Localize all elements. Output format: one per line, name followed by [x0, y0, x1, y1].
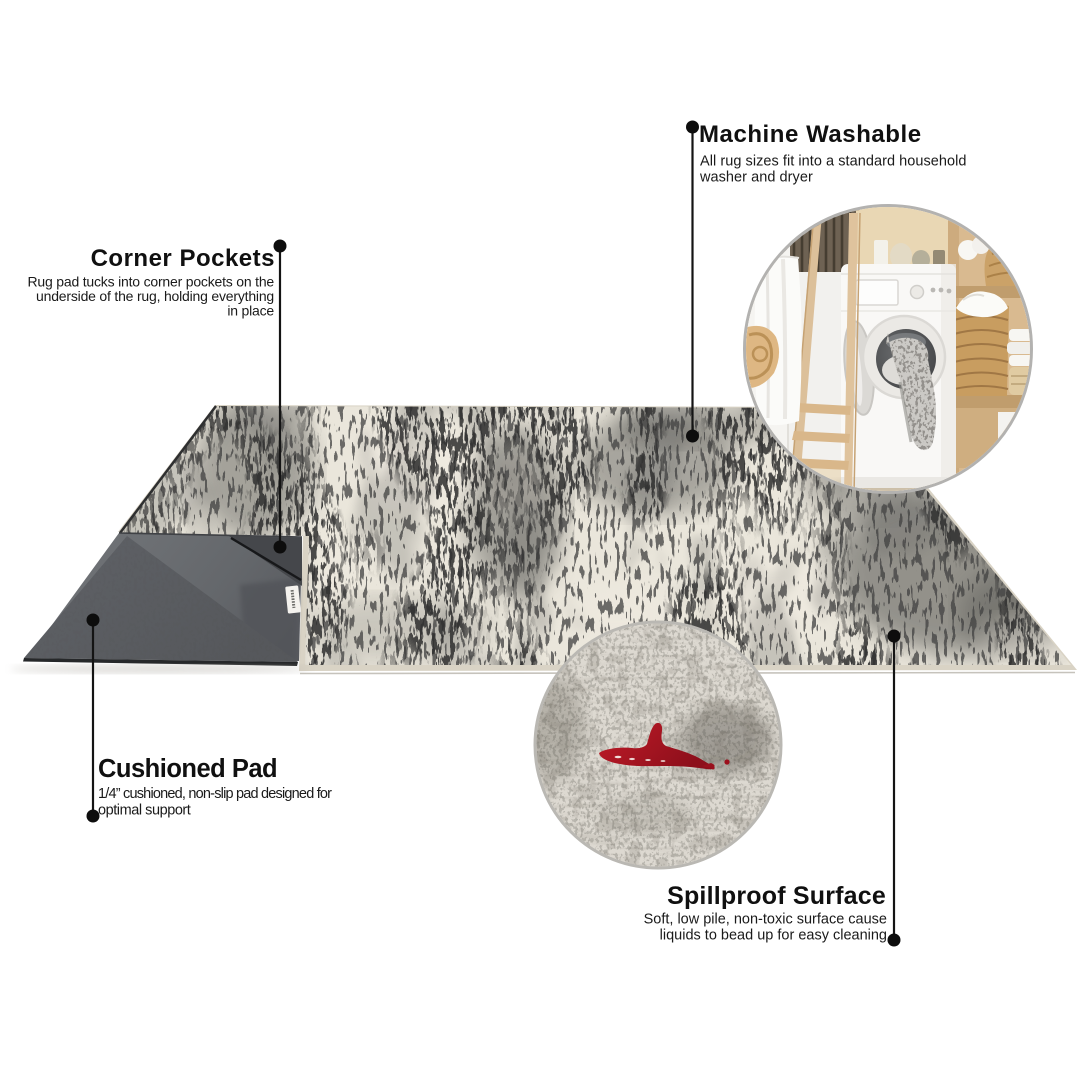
svg-text:Machine Washable: Machine Washable	[699, 121, 922, 148]
svg-text:optimal support: optimal support	[98, 803, 191, 819]
svg-text:liquids to bead up for easy cl: liquids to bead up for easy cleaning	[660, 928, 887, 944]
svg-text:washer and dryer: washer and dryer	[699, 170, 813, 186]
svg-text:Corner Pockets: Corner Pockets	[91, 245, 275, 272]
svg-text:1/4” cushioned, non-slip pad d: 1/4” cushioned, non-slip pad designed fo…	[98, 786, 332, 802]
svg-text:Soft, low pile, non-toxic surf: Soft, low pile, non-toxic surface cause	[644, 912, 887, 928]
svg-text:All rug sizes fit into a stand: All rug sizes fit into a standard househ…	[700, 154, 967, 170]
svg-text:Cushioned Pad: Cushioned Pad	[98, 755, 277, 783]
svg-text:in place: in place	[227, 303, 274, 319]
svg-text:Spillproof Surface: Spillproof Surface	[667, 882, 886, 910]
